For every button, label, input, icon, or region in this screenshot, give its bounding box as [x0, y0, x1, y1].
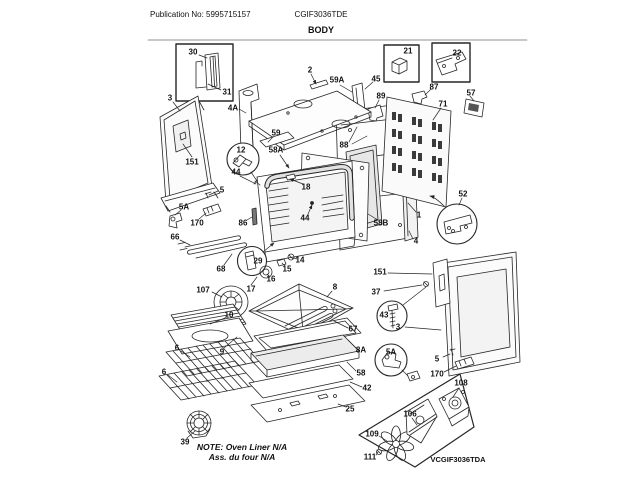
part-callout-5A: 5A: [386, 348, 396, 357]
part-callout-4A: 4A: [228, 104, 238, 113]
part-callout-6: 6: [175, 344, 179, 353]
inset-box-22: [432, 43, 470, 82]
part-callout-111: 111: [364, 453, 376, 462]
part-callout-2: 2: [308, 66, 312, 75]
exploded-view-diagram: [0, 0, 640, 480]
part-callout-5: 5: [220, 186, 224, 195]
part-callout-1: 1: [417, 211, 421, 220]
part-callout-14: 14: [296, 256, 305, 265]
part-callout-107: 107: [196, 286, 209, 295]
inset-box-21: [384, 45, 419, 82]
motor-module: [359, 374, 474, 467]
part-callout-108: 108: [454, 379, 467, 388]
part-callout-58B: 58B: [374, 219, 389, 228]
diagram-stage: Publication No: 5995715157 CGIF3036TDE B…: [0, 0, 640, 480]
part-callout-52: 52: [459, 190, 468, 199]
part-callout-151: 151: [185, 158, 198, 167]
part-callout-3: 3: [396, 323, 400, 332]
part-callout-45: 45: [372, 75, 381, 84]
part-callout-44: 44: [232, 168, 241, 177]
part-callout-151: 151: [373, 268, 386, 277]
part-callout-42: 42: [363, 384, 372, 393]
part-callout-22: 22: [453, 49, 462, 58]
part-callout-5: 5: [435, 355, 439, 364]
part-callout-5A: 5A: [179, 203, 189, 212]
part-callout-58: 58: [357, 369, 366, 378]
part-callout-30: 30: [189, 48, 198, 57]
inset-box-30-31: [176, 44, 233, 110]
part-callout-21: 21: [404, 47, 413, 56]
part-callout-37: 37: [372, 288, 381, 297]
part-callout-57: 57: [467, 89, 476, 98]
part-callout-44: 44: [301, 214, 310, 223]
bracket-4a: [239, 84, 259, 151]
plate-57-part: [464, 99, 484, 117]
part-callout-68: 68: [217, 265, 226, 274]
part-callout-9: 9: [220, 348, 224, 357]
part-callout-87: 87: [430, 83, 439, 92]
part-callout-86: 86: [239, 219, 248, 228]
part-callout-59: 59: [272, 129, 281, 138]
part-callout-31: 31: [223, 88, 232, 97]
part-callout-4: 4: [414, 237, 418, 246]
part-callout-8: 8: [333, 283, 337, 292]
part-callout-10: 10: [225, 311, 234, 320]
part-callout-88: 88: [340, 141, 349, 150]
part-callout-58A: 58A: [269, 146, 284, 155]
vent-panel: [382, 97, 451, 207]
oven-rack-lower: [159, 361, 257, 400]
part-callout-17: 17: [247, 285, 256, 294]
right-side-panel: [443, 252, 520, 376]
part-callout-8A: 8A: [356, 346, 366, 355]
part-callout-170: 170: [190, 219, 203, 228]
part-callout-39: 39: [181, 438, 190, 447]
module-label: VCGIF3036TDA: [430, 455, 485, 464]
part-callout-43: 43: [380, 311, 389, 320]
detail-circle-5a: [375, 344, 420, 381]
clip-87-part: [412, 91, 427, 104]
part-callout-15: 15: [283, 265, 292, 274]
part-callout-16: 16: [267, 275, 276, 284]
part-callout-170: 170: [430, 370, 443, 379]
part-callout-25: 25: [346, 405, 355, 414]
part-callout-29: 29: [254, 257, 263, 266]
note-line-1: NOTE: Oven Liner N/A: [197, 442, 287, 452]
part-callout-66: 66: [171, 233, 180, 242]
part-callout-12: 12: [237, 146, 246, 155]
part-callout-18: 18: [302, 183, 311, 192]
part-callout-109: 109: [365, 430, 378, 439]
part-callout-106: 106: [403, 410, 416, 419]
part-callout-59A: 59A: [330, 76, 345, 85]
note-line-2: Ass. du four N/A: [197, 452, 287, 462]
blower-fan-39: [187, 411, 211, 438]
bake-element: [178, 236, 247, 258]
part-callout-67: 67: [349, 325, 358, 334]
part-callout-89: 89: [377, 92, 386, 101]
bracket-151-right: [424, 259, 451, 307]
part-callout-71: 71: [439, 100, 448, 109]
oven-liner-note: NOTE: Oven Liner N/A Ass. du four N/A: [197, 442, 287, 462]
part-callout-6: 6: [162, 368, 166, 377]
parts-diagram-page: { "header": { "publication": "Publicatio…: [0, 0, 640, 480]
part-callout-3: 3: [168, 94, 172, 103]
